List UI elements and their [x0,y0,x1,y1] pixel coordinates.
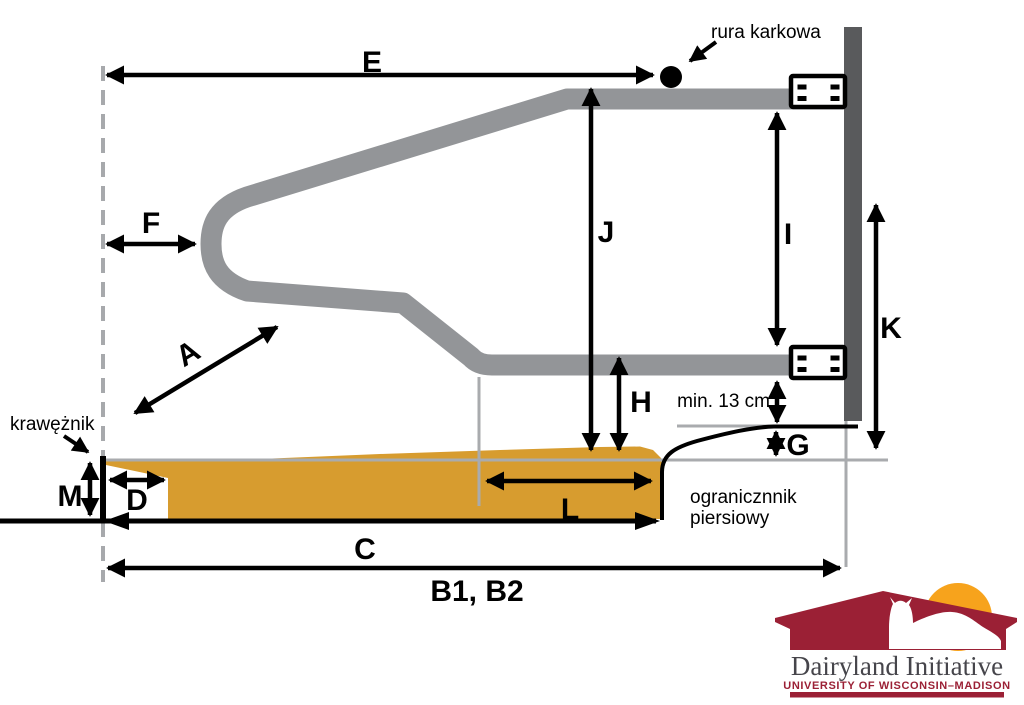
logo-subtitle: UNIVERSITY OF WISCONSIN–MADISON [783,680,1010,692]
label-i: I [784,218,792,251]
label-j: J [598,216,615,249]
brisket-board-annotation-line1: ogranicznnik [690,487,797,508]
curb [100,456,106,523]
bolt-mark [831,367,840,372]
neck-rail-pointer-arrow [690,42,716,61]
freestall-dimension-diagram: E F A J I K H G M D L C B1, B2 rura kark… [0,0,1024,705]
label-d: D [126,484,148,517]
logo-underline [790,692,1004,698]
neck-rail-dot [660,66,682,88]
dairyland-initiative-logo: Dairyland Initiative UNIVERSITY OF WISCO… [775,583,1017,698]
label-a: A [170,334,206,373]
brisket-board-annotation-line2: piersiowy [690,508,770,529]
label-m: M [58,480,83,513]
label-h: H [630,386,652,419]
mounting-bracket-top [791,76,845,107]
bolt-mark [831,96,840,101]
mounting-bracket-bottom [791,347,845,378]
bolt-mark [798,85,807,90]
label-f: F [142,207,160,240]
label-b1-b2: B1, B2 [430,575,523,608]
curb-annotation: krawężnik [10,414,95,435]
label-e: E [362,46,382,79]
label-c: C [354,533,376,566]
stall-divider-loop [211,99,846,365]
bedding-wedge-at-curb [106,459,168,478]
bolt-mark [831,85,840,90]
label-l: L [561,493,579,526]
min-clearance-annotation: min. 13 cm [677,391,770,412]
logo-title: Dairyland Initiative [791,651,1003,681]
diagram-canvas: E F A J I K H G M D L C B1, B2 rura kark… [0,0,1024,705]
bolt-mark [831,356,840,361]
bolt-mark [798,367,807,372]
dimension-arrow-a [135,327,277,413]
neck-rail-annotation: rura karkowa [711,22,821,43]
bolt-mark [798,356,807,361]
label-g: G [786,429,809,462]
label-k: K [880,312,902,345]
bolt-mark [798,96,807,101]
curb-pointer-arrow [64,436,88,452]
